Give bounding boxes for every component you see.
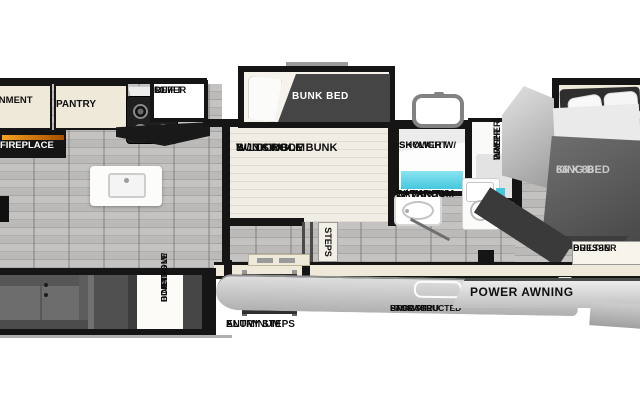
built-in-dresser: BUILT-INDRESSER	[572, 241, 640, 265]
wall-dinette-right	[202, 268, 216, 334]
counter-drawer	[279, 258, 295, 263]
step-line	[310, 222, 313, 262]
kitchen-island	[90, 166, 162, 206]
faucet-icon	[124, 178, 129, 183]
burner-icon	[133, 104, 148, 119]
dinette-bench	[183, 275, 202, 329]
sofa-button-icon	[44, 283, 48, 287]
tv	[0, 196, 9, 222]
refrigerator: 10.7CU FTREFER	[150, 80, 208, 122]
entertainment-center: ENTERTAINMENTCENTER	[0, 84, 52, 130]
skylight-notch	[434, 92, 444, 97]
shower: SHOWER W/SKYLIGHT	[394, 124, 470, 196]
awning-top-edge	[452, 278, 640, 281]
pantry: PANTRY	[54, 84, 128, 130]
steps-label: STEPS	[323, 227, 333, 257]
wall-bunkroom-bottom	[222, 218, 304, 226]
shower-water	[401, 171, 463, 189]
sink	[108, 173, 146, 198]
bunk-pillow	[248, 76, 282, 122]
skylight	[412, 94, 464, 128]
tub-drain-icon	[405, 209, 409, 213]
dinette-label-box: BOOTHDINETTE W/CORNHOLEBOARDS	[137, 275, 183, 329]
wall-kingslide-top	[552, 78, 640, 85]
bedroom-wardrobe	[502, 86, 554, 190]
storage-door	[414, 281, 462, 299]
wall-dinette-top	[0, 268, 216, 275]
bunk-slide: BUNK BED	[238, 66, 395, 128]
dinette-bench	[128, 275, 137, 329]
rv-floor-plan: ENTERTAINMENTCENTER PANTRY 10.7CU FTREFE…	[0, 0, 640, 417]
entry-counter	[248, 254, 310, 266]
sofa-base	[0, 320, 88, 329]
sofa-button-icon	[44, 293, 48, 297]
slide-handle	[286, 62, 348, 66]
slide-shadow-line	[0, 335, 232, 338]
dinette-table	[88, 275, 128, 329]
counter-drawer	[257, 258, 273, 263]
floor-bunk-room	[229, 126, 390, 222]
steps-strip: STEPS	[318, 222, 338, 262]
awning-roller-end	[589, 301, 640, 329]
wall-bunkroom-left	[222, 126, 230, 277]
fireplace: FIREPLACE	[0, 130, 66, 158]
sofa	[0, 275, 88, 329]
